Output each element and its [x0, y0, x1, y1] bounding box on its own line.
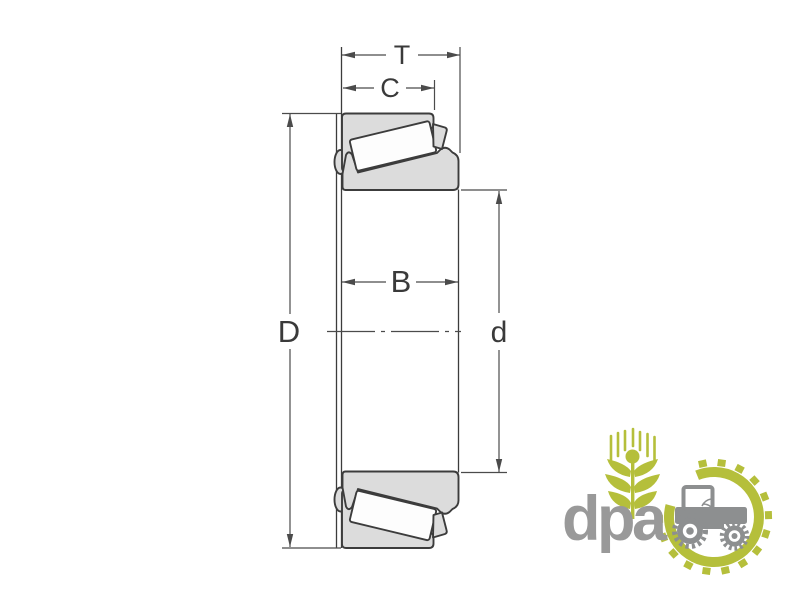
product-diagram-image: T C B D — [0, 0, 800, 600]
dimension-D: D — [278, 114, 341, 549]
label-total-width: T — [394, 40, 411, 70]
label-cone-width: B — [391, 264, 412, 299]
tractor-icon — [675, 487, 748, 549]
label-cup-width: C — [380, 73, 400, 103]
bearing-top-half — [335, 114, 459, 191]
dpa-logo: dpa — [562, 429, 772, 575]
cage-tab — [433, 124, 447, 149]
bearing-bottom-half — [335, 472, 459, 549]
diagram-canvas: T C B D — [0, 0, 800, 600]
label-outer-diameter: D — [278, 314, 300, 349]
label-bore-diameter: d — [491, 316, 508, 349]
dimension-C: C — [343, 73, 435, 110]
dimension-B: B — [342, 264, 458, 299]
dpa-wordmark: dpa — [562, 484, 668, 554]
dimension-d: d — [461, 190, 507, 473]
